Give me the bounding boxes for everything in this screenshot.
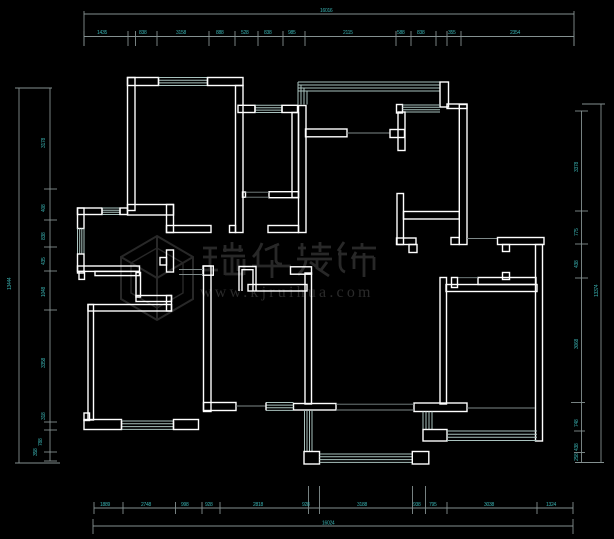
svg-text:3178: 3178 [41, 138, 47, 148]
svg-text:3378: 3378 [574, 162, 580, 172]
svg-text:13444: 13444 [7, 277, 13, 290]
svg-text:838: 838 [264, 30, 272, 36]
svg-text:3188: 3188 [357, 502, 367, 508]
svg-text:1048: 1048 [41, 287, 47, 297]
svg-text:938: 938 [413, 502, 421, 508]
svg-text:3068: 3068 [574, 339, 580, 349]
svg-text:528: 528 [241, 30, 249, 36]
svg-text:748: 748 [574, 419, 580, 427]
svg-text:3038: 3038 [484, 502, 494, 508]
svg-text:888: 888 [216, 30, 224, 36]
svg-text:16016: 16016 [320, 8, 333, 14]
svg-text:438: 438 [574, 260, 580, 268]
svg-text:795: 795 [429, 502, 437, 508]
svg-text:985: 985 [288, 30, 296, 36]
svg-text:1324: 1324 [546, 502, 556, 508]
svg-text:435: 435 [41, 257, 47, 265]
svg-text:2818: 2818 [253, 502, 263, 508]
svg-text:1889: 1889 [100, 502, 110, 508]
svg-text:928: 928 [302, 502, 310, 508]
svg-text:318: 318 [41, 412, 47, 420]
svg-text:438: 438 [574, 443, 580, 451]
svg-text:838: 838 [417, 30, 425, 36]
svg-text:2354: 2354 [510, 30, 520, 36]
svg-text:1435: 1435 [97, 30, 107, 36]
svg-text:358: 358 [33, 448, 39, 456]
svg-text:588: 588 [397, 30, 405, 36]
svg-text:www.kjruihua.com: www.kjruihua.com [200, 284, 374, 301]
svg-text:16024: 16024 [322, 521, 335, 527]
svg-text:3158: 3158 [176, 30, 186, 36]
svg-text:408: 408 [41, 204, 47, 212]
svg-text:838: 838 [41, 232, 47, 240]
svg-text:998: 998 [181, 502, 189, 508]
svg-text:838: 838 [139, 30, 147, 36]
svg-text:13374: 13374 [594, 284, 600, 297]
svg-text:258: 258 [574, 453, 580, 461]
svg-text:775: 775 [574, 228, 580, 236]
svg-text:928: 928 [205, 502, 213, 508]
svg-text:3358: 3358 [41, 358, 47, 368]
svg-text:788: 788 [38, 438, 44, 446]
svg-text:2115: 2115 [343, 30, 353, 36]
svg-text:355: 355 [448, 30, 456, 36]
svg-text:2748: 2748 [141, 502, 151, 508]
